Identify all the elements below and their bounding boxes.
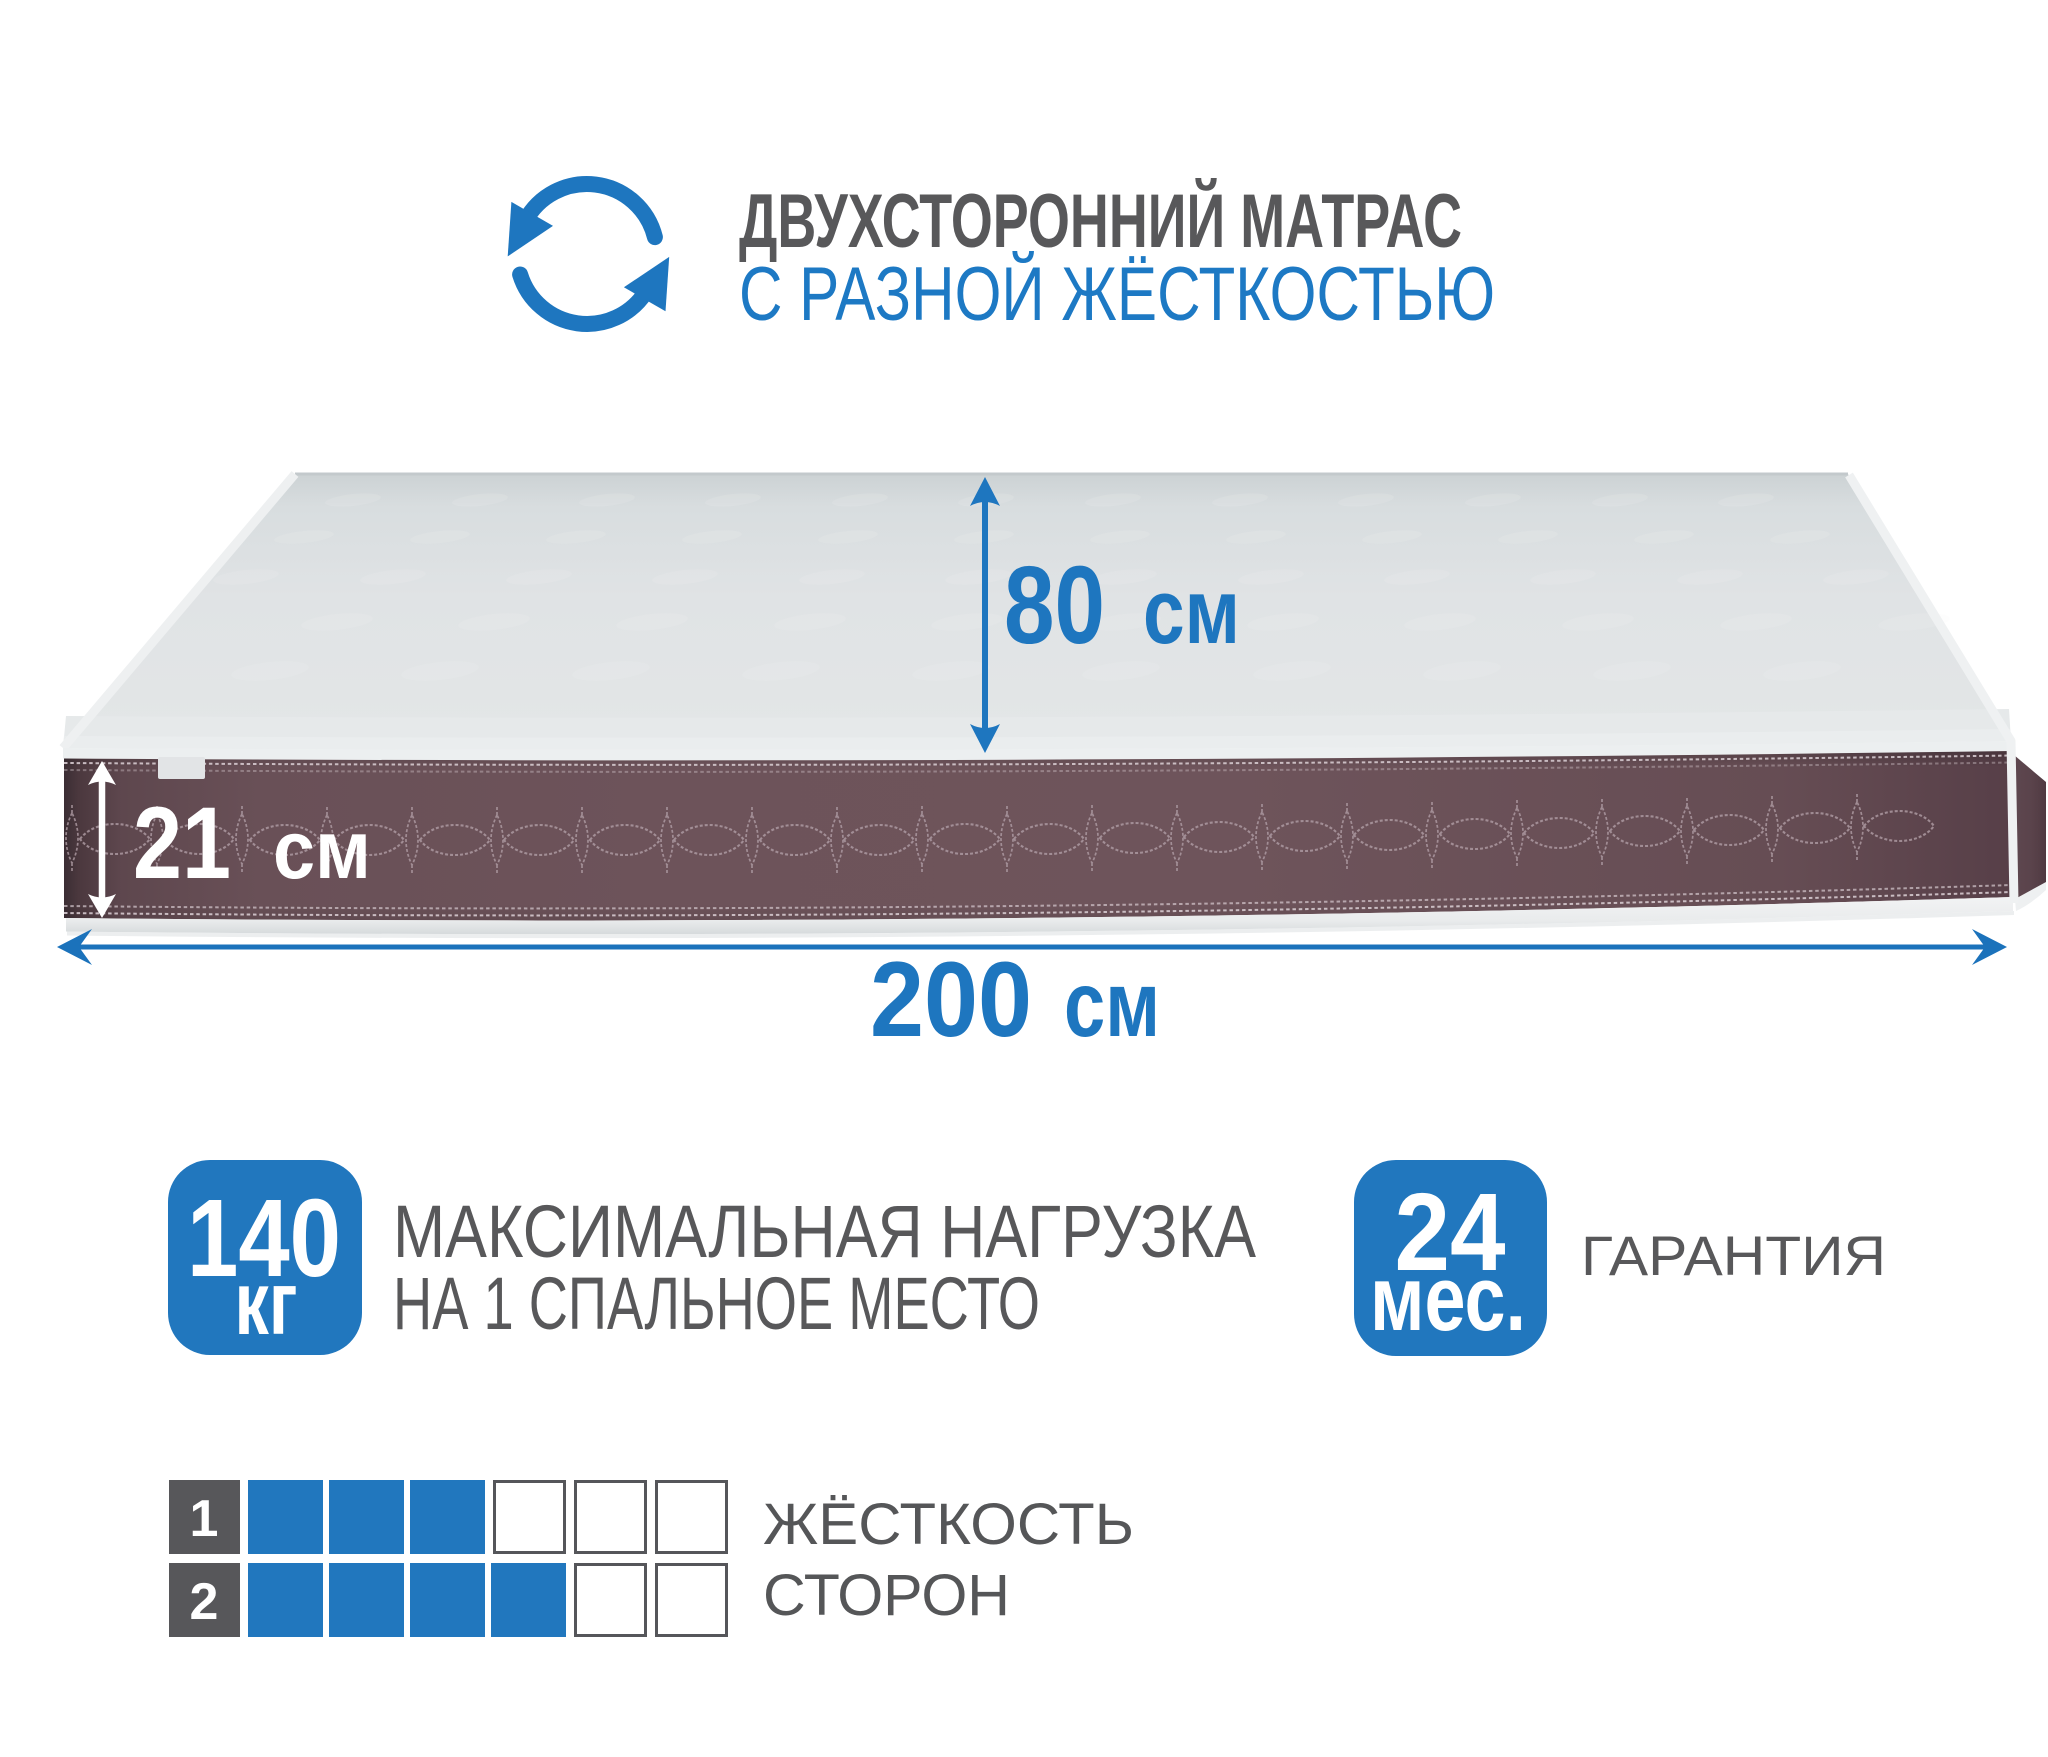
- svg-text:21: 21: [133, 786, 231, 900]
- svg-text:СТОРОН: СТОРОН: [763, 1563, 1010, 1628]
- svg-text:ГАРАНТИЯ: ГАРАНТИЯ: [1581, 1224, 1886, 1287]
- svg-text:200: 200: [870, 939, 1032, 1059]
- svg-text:см: см: [273, 803, 371, 896]
- svg-text:кг: кг: [235, 1254, 298, 1354]
- svg-text:ЖЁСТКОСТЬ: ЖЁСТКОСТЬ: [763, 1492, 1134, 1557]
- svg-text:см: см: [1143, 561, 1240, 663]
- svg-text:2: 2: [190, 1573, 219, 1631]
- svg-text:НА 1 СПАЛЬНОЕ МЕСТО: НА 1 СПАЛЬНОЕ МЕСТО: [393, 1262, 1040, 1345]
- svg-text:МАКСИМАЛЬНАЯ НАГРУЗКА: МАКСИМАЛЬНАЯ НАГРУЗКА: [393, 1190, 1257, 1273]
- svg-text:80: 80: [1004, 544, 1105, 667]
- svg-text:1: 1: [190, 1490, 219, 1548]
- svg-text:см: см: [1064, 952, 1160, 1056]
- svg-text:мес.: мес.: [1370, 1248, 1526, 1350]
- svg-text:С РАЗНОЙ ЖЁСТКОСТЬЮ: С РАЗНОЙ ЖЁСТКОСТЬЮ: [739, 251, 1495, 337]
